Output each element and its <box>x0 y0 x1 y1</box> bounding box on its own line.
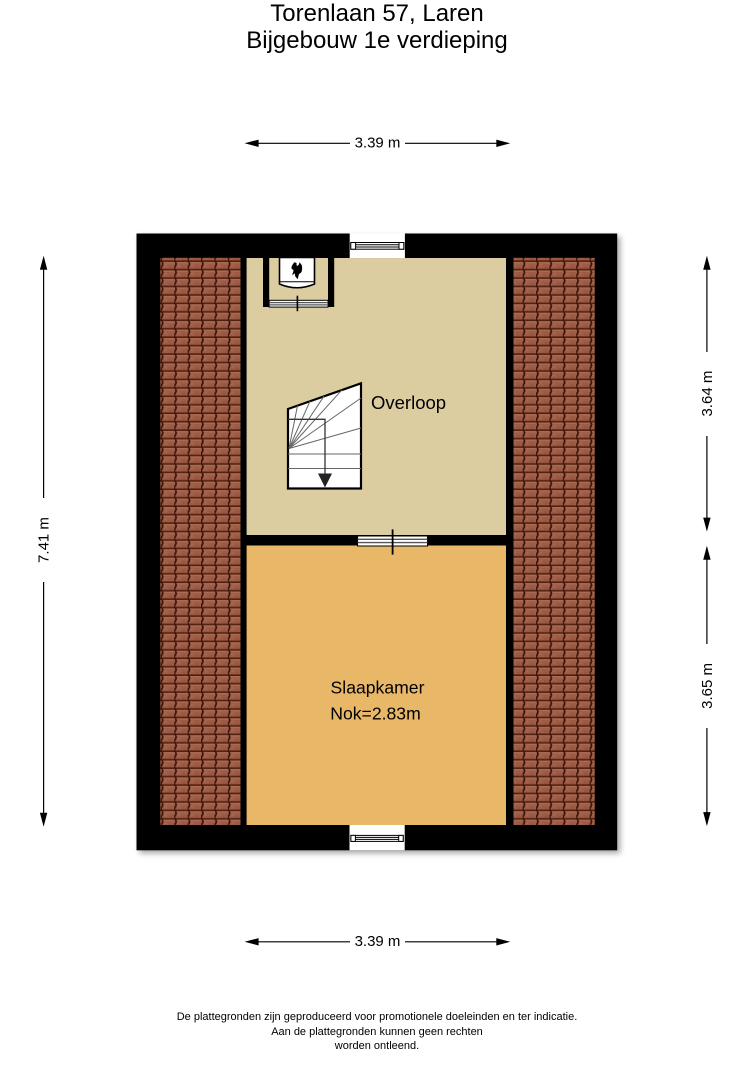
svg-text:3.39 m: 3.39 m <box>355 933 401 950</box>
svg-text:3.64 m: 3.64 m <box>699 371 716 417</box>
svg-text:Overloop: Overloop <box>371 392 446 413</box>
svg-text:Nok=2.83m: Nok=2.83m <box>330 704 420 724</box>
svg-text:Slaapkamer: Slaapkamer <box>331 678 425 698</box>
svg-text:3.39 m: 3.39 m <box>355 135 401 152</box>
svg-text:3.65 m: 3.65 m <box>699 663 716 709</box>
svg-text:7.41 m: 7.41 m <box>36 517 53 563</box>
